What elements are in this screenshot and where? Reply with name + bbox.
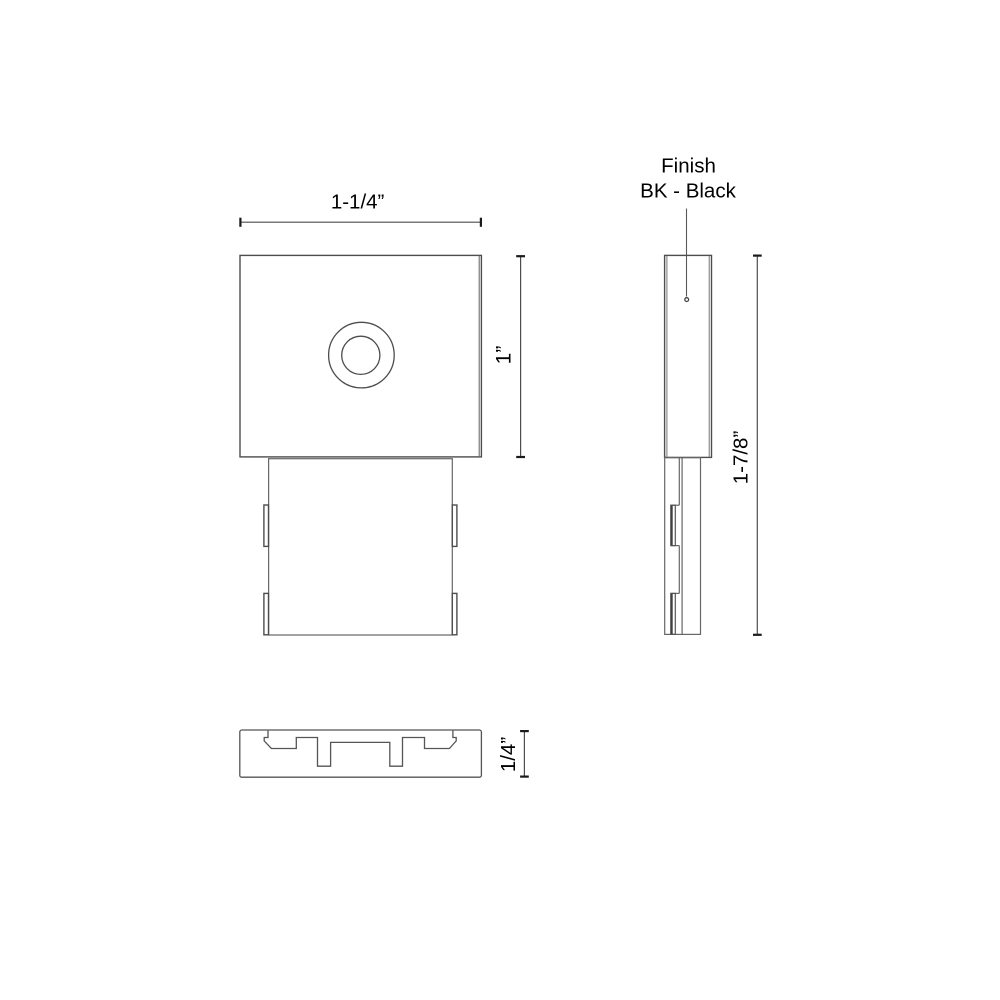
svg-text:1-7/8”: 1-7/8” xyxy=(730,431,753,485)
svg-text:1”: 1” xyxy=(493,346,516,365)
svg-text:BK - Black: BK - Black xyxy=(640,179,736,202)
svg-text:1-1/4”: 1-1/4” xyxy=(331,191,385,214)
svg-text:Finish: Finish xyxy=(661,155,716,178)
svg-text:1/4”: 1/4” xyxy=(497,737,520,772)
